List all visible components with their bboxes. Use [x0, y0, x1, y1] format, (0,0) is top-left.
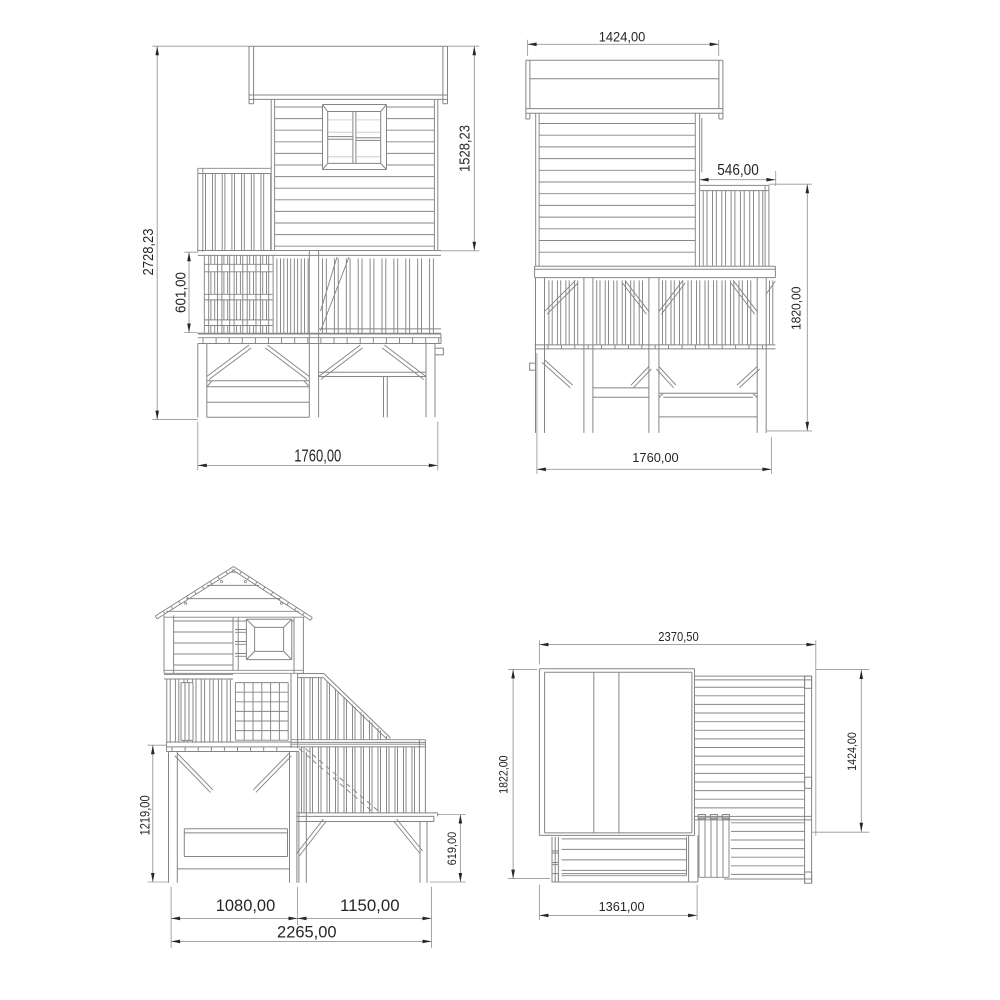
svg-text:2728,23: 2728,23 — [141, 229, 157, 276]
svg-text:546,00: 546,00 — [717, 162, 759, 179]
svg-text:2370,50: 2370,50 — [658, 629, 699, 644]
svg-text:1820,00: 1820,00 — [790, 287, 804, 331]
svg-text:1361,00: 1361,00 — [599, 899, 645, 914]
svg-text:1760,00: 1760,00 — [632, 450, 678, 465]
svg-text:1760,00: 1760,00 — [294, 446, 341, 466]
svg-text:1150,00: 1150,00 — [340, 897, 400, 915]
svg-text:601,00: 601,00 — [174, 272, 190, 313]
svg-text:2265,00: 2265,00 — [277, 924, 337, 942]
svg-text:1080,00: 1080,00 — [216, 897, 276, 915]
svg-text:1822,00: 1822,00 — [499, 756, 511, 794]
svg-text:1219,00: 1219,00 — [136, 795, 152, 835]
svg-text:1424,00: 1424,00 — [847, 732, 859, 771]
svg-text:1528,23: 1528,23 — [458, 125, 474, 172]
svg-text:619,00: 619,00 — [445, 832, 459, 866]
svg-text:1424,00: 1424,00 — [599, 29, 646, 45]
